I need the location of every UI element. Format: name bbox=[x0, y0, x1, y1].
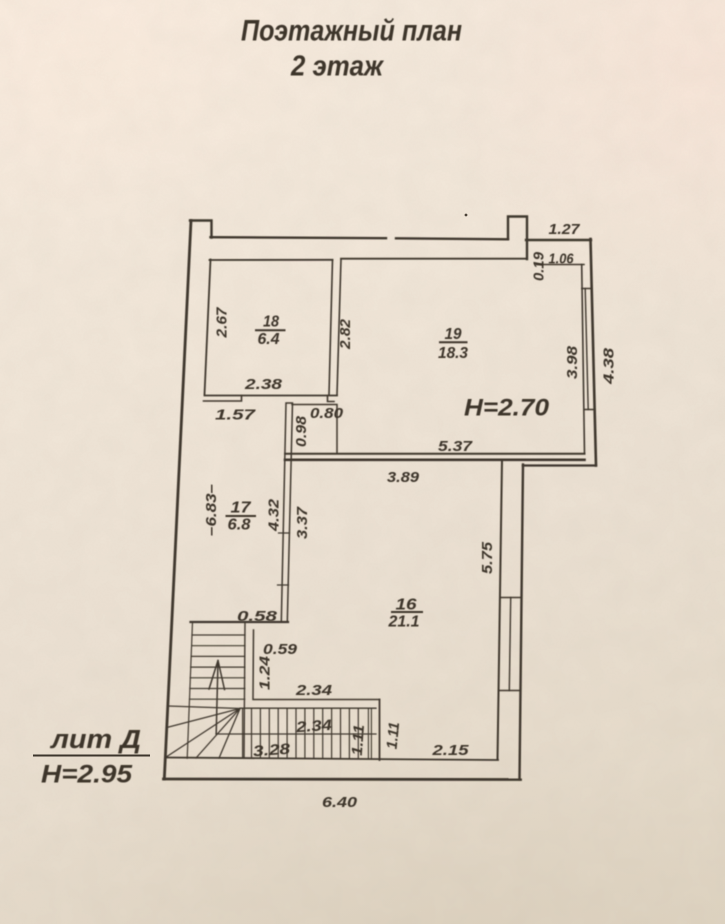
svg-text:16: 16 bbox=[396, 597, 417, 614]
svg-text:6.4: 6.4 bbox=[258, 331, 280, 348]
svg-text:2.82: 2.82 bbox=[337, 318, 354, 350]
svg-text:0.58: 0.58 bbox=[237, 608, 278, 625]
svg-text:1.11: 1.11 bbox=[384, 721, 404, 750]
svg-text:1.24: 1.24 bbox=[256, 655, 273, 690]
svg-text:0.80: 0.80 bbox=[310, 405, 344, 422]
svg-text:Н=2.95: Н=2.95 bbox=[41, 761, 133, 789]
svg-text:1.57: 1.57 bbox=[215, 407, 256, 424]
svg-text:0.98: 0.98 bbox=[293, 415, 310, 447]
svg-text:2.34: 2.34 bbox=[294, 717, 333, 737]
svg-text:4.38: 4.38 bbox=[600, 347, 617, 385]
svg-text:6.8: 6.8 bbox=[228, 517, 251, 534]
svg-text:1.11: 1.11 bbox=[349, 724, 368, 756]
svg-text:5.75: 5.75 bbox=[479, 541, 496, 574]
svg-text:4.32: 4.32 bbox=[265, 498, 282, 532]
svg-text:18: 18 bbox=[263, 314, 279, 331]
svg-text:2.15: 2.15 bbox=[431, 742, 469, 759]
svg-text:3.37: 3.37 bbox=[294, 506, 311, 539]
svg-text:21.1: 21.1 bbox=[387, 614, 419, 631]
svg-text:–6.83–: –6.83– bbox=[203, 484, 220, 536]
svg-text:17: 17 bbox=[231, 500, 253, 517]
svg-text:3.28: 3.28 bbox=[252, 741, 291, 761]
svg-text:3.89: 3.89 bbox=[387, 469, 420, 486]
svg-text:6.40: 6.40 bbox=[322, 794, 358, 811]
svg-text:1.27: 1.27 bbox=[549, 221, 581, 238]
svg-text:2.67: 2.67 bbox=[213, 307, 230, 339]
svg-text:3.98: 3.98 bbox=[564, 345, 581, 379]
svg-text:Поэтажный план: Поэтажный план bbox=[241, 15, 462, 48]
svg-text:2 этаж: 2 этаж bbox=[290, 51, 385, 83]
svg-text:0.19: 0.19 bbox=[530, 251, 547, 281]
svg-text:лит Д: лит Д bbox=[49, 726, 141, 754]
svg-text:1.06: 1.06 bbox=[549, 251, 575, 268]
svg-text:18.3: 18.3 bbox=[438, 345, 468, 362]
svg-text:Н=2.70: Н=2.70 bbox=[464, 395, 549, 422]
svg-text:2.34: 2.34 bbox=[295, 682, 333, 699]
svg-text:0.59: 0.59 bbox=[263, 641, 298, 658]
svg-text:19: 19 bbox=[445, 326, 462, 343]
svg-text:2.38: 2.38 bbox=[244, 376, 283, 393]
svg-text:5.37: 5.37 bbox=[438, 438, 473, 455]
